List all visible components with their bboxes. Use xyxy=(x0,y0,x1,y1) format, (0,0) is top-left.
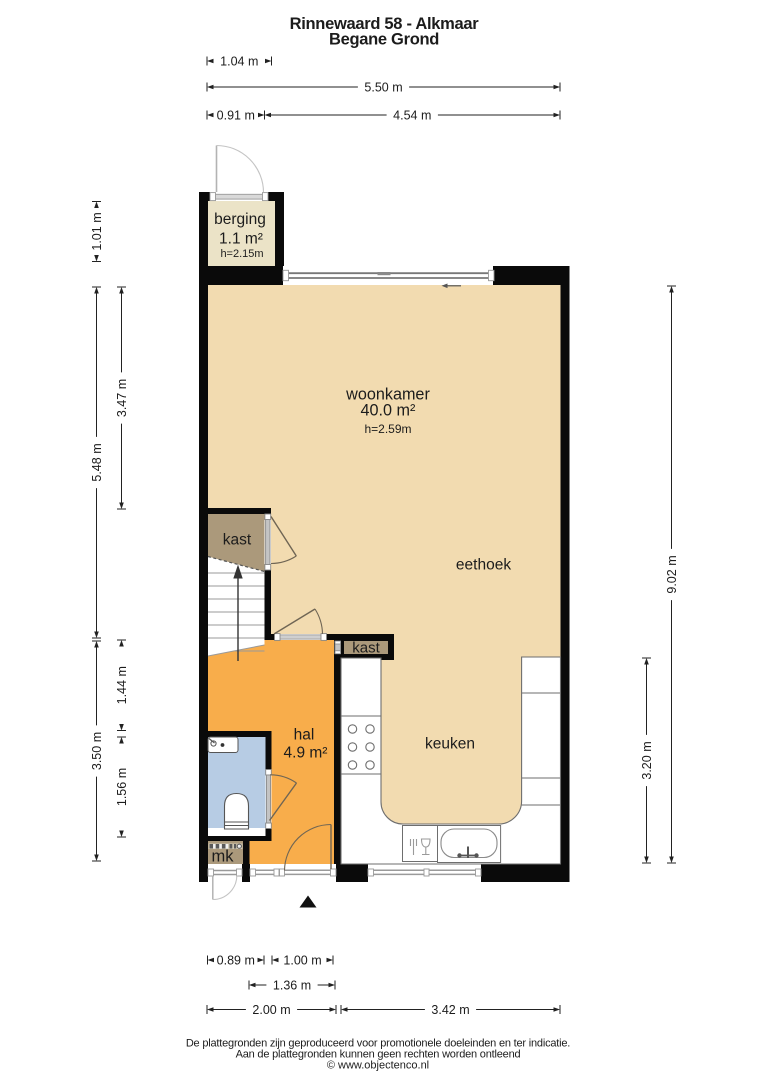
svg-text:kast: kast xyxy=(352,640,380,657)
svg-text:2.00 m: 2.00 m xyxy=(252,1003,290,1017)
svg-text:40.0 m²: 40.0 m² xyxy=(361,402,416,420)
svg-text:h=2.59m: h=2.59m xyxy=(364,422,411,436)
svg-text:1.00 m: 1.00 m xyxy=(283,953,321,967)
svg-text:3.20 m: 3.20 m xyxy=(640,741,654,779)
svg-text:keuken: keuken xyxy=(425,736,475,753)
svg-text:berging: berging xyxy=(214,211,266,228)
svg-text:1.44 m: 1.44 m xyxy=(115,666,129,704)
svg-text:0.91 m: 0.91 m xyxy=(217,108,255,122)
svg-text:3.47 m: 3.47 m xyxy=(115,379,129,417)
svg-text:h=2.15m: h=2.15m xyxy=(220,248,263,260)
svg-text:© www.objectenco.nl: © www.objectenco.nl xyxy=(327,1060,429,1072)
svg-text:4.9 m²: 4.9 m² xyxy=(284,745,328,762)
svg-text:hal: hal xyxy=(294,727,315,744)
svg-text:1.56 m: 1.56 m xyxy=(115,768,129,806)
svg-text:1.1 m²: 1.1 m² xyxy=(219,231,263,248)
svg-text:5.48 m: 5.48 m xyxy=(90,443,104,481)
svg-text:1.04 m: 1.04 m xyxy=(220,54,258,68)
svg-text:5.50 m: 5.50 m xyxy=(364,80,402,94)
svg-text:1.01 m: 1.01 m xyxy=(90,212,104,250)
svg-text:mk: mk xyxy=(212,848,235,866)
svg-text:eethoek: eethoek xyxy=(456,557,511,574)
svg-text:kast: kast xyxy=(223,532,252,549)
svg-text:9.02 m: 9.02 m xyxy=(665,555,679,593)
svg-text:0.89 m: 0.89 m xyxy=(217,953,255,967)
svg-text:3.42 m: 3.42 m xyxy=(431,1003,469,1017)
svg-text:1.36 m: 1.36 m xyxy=(273,978,311,992)
svg-text:Begane Grond: Begane Grond xyxy=(329,31,439,49)
svg-text:3.50 m: 3.50 m xyxy=(90,732,104,770)
svg-text:4.54 m: 4.54 m xyxy=(393,108,431,122)
